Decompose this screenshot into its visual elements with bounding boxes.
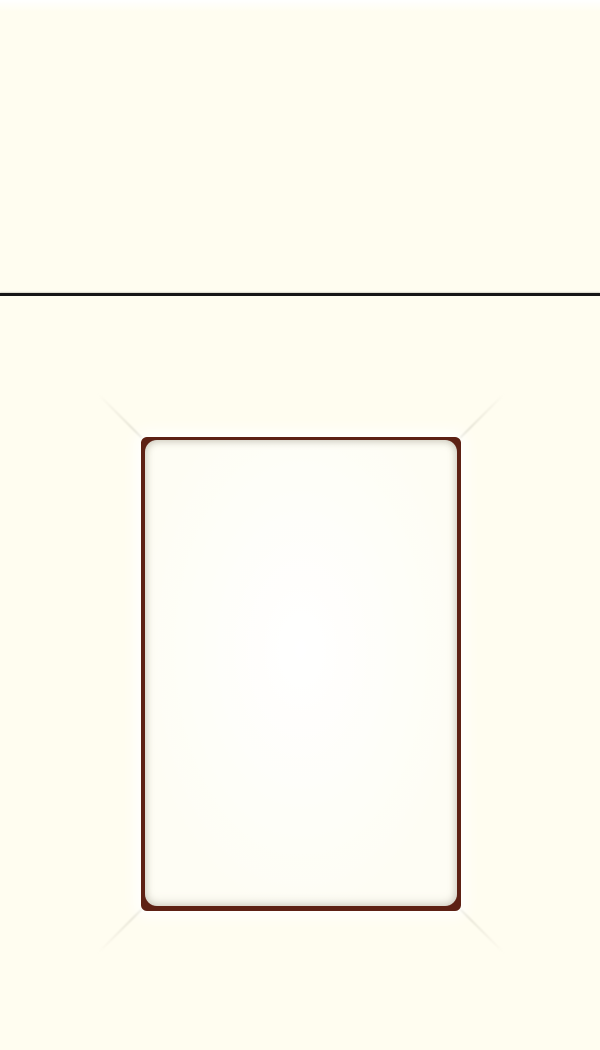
- miter-joint-line-top-right: [459, 393, 504, 438]
- miter-joint-line-top-left: [97, 393, 142, 438]
- door-front-face: [0, 296, 600, 1050]
- miter-joint-line-bottom-right: [459, 908, 504, 953]
- cabinet-sample-image: [0, 0, 600, 1050]
- miter-joint-line-bottom-left: [97, 908, 142, 953]
- door-center-panel-frame: [141, 437, 461, 911]
- drawer-front-slab: [0, 0, 600, 293]
- door-center-panel-surface: [145, 440, 457, 906]
